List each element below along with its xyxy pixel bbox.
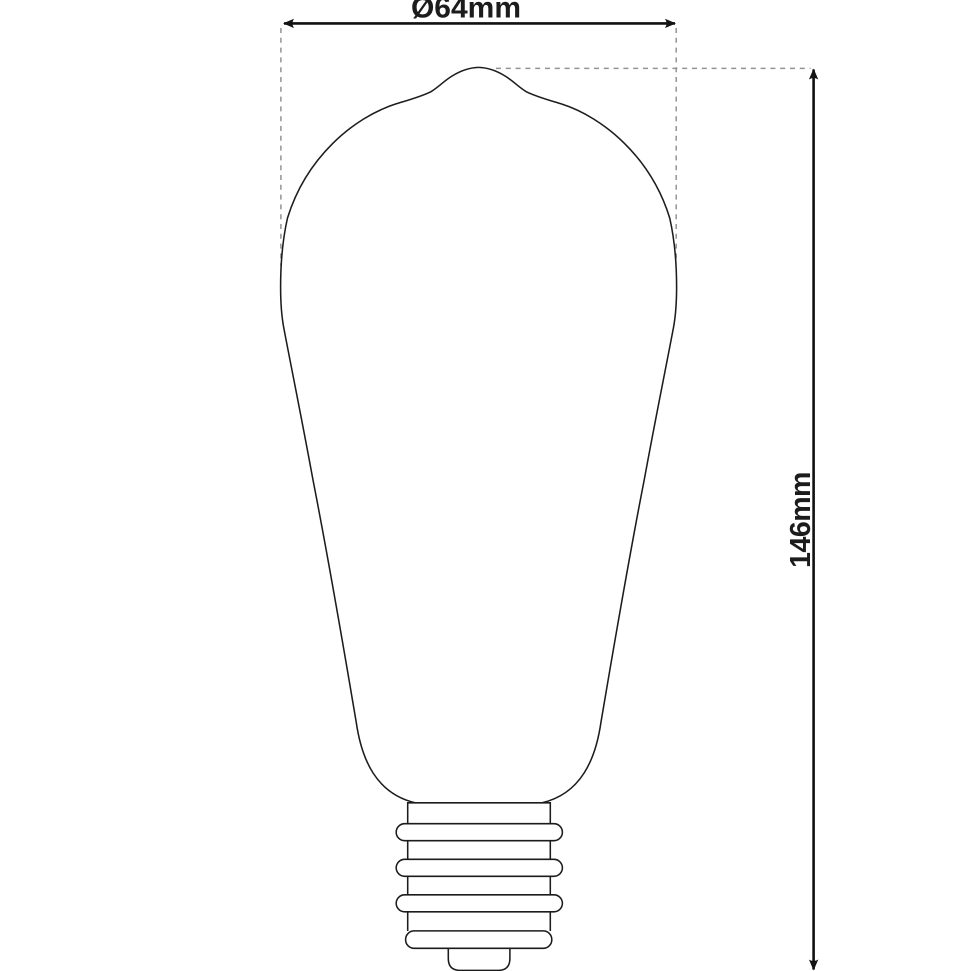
- svg-text:146mm: 146mm: [785, 472, 817, 568]
- svg-text:Ø64mm: Ø64mm: [411, 0, 521, 25]
